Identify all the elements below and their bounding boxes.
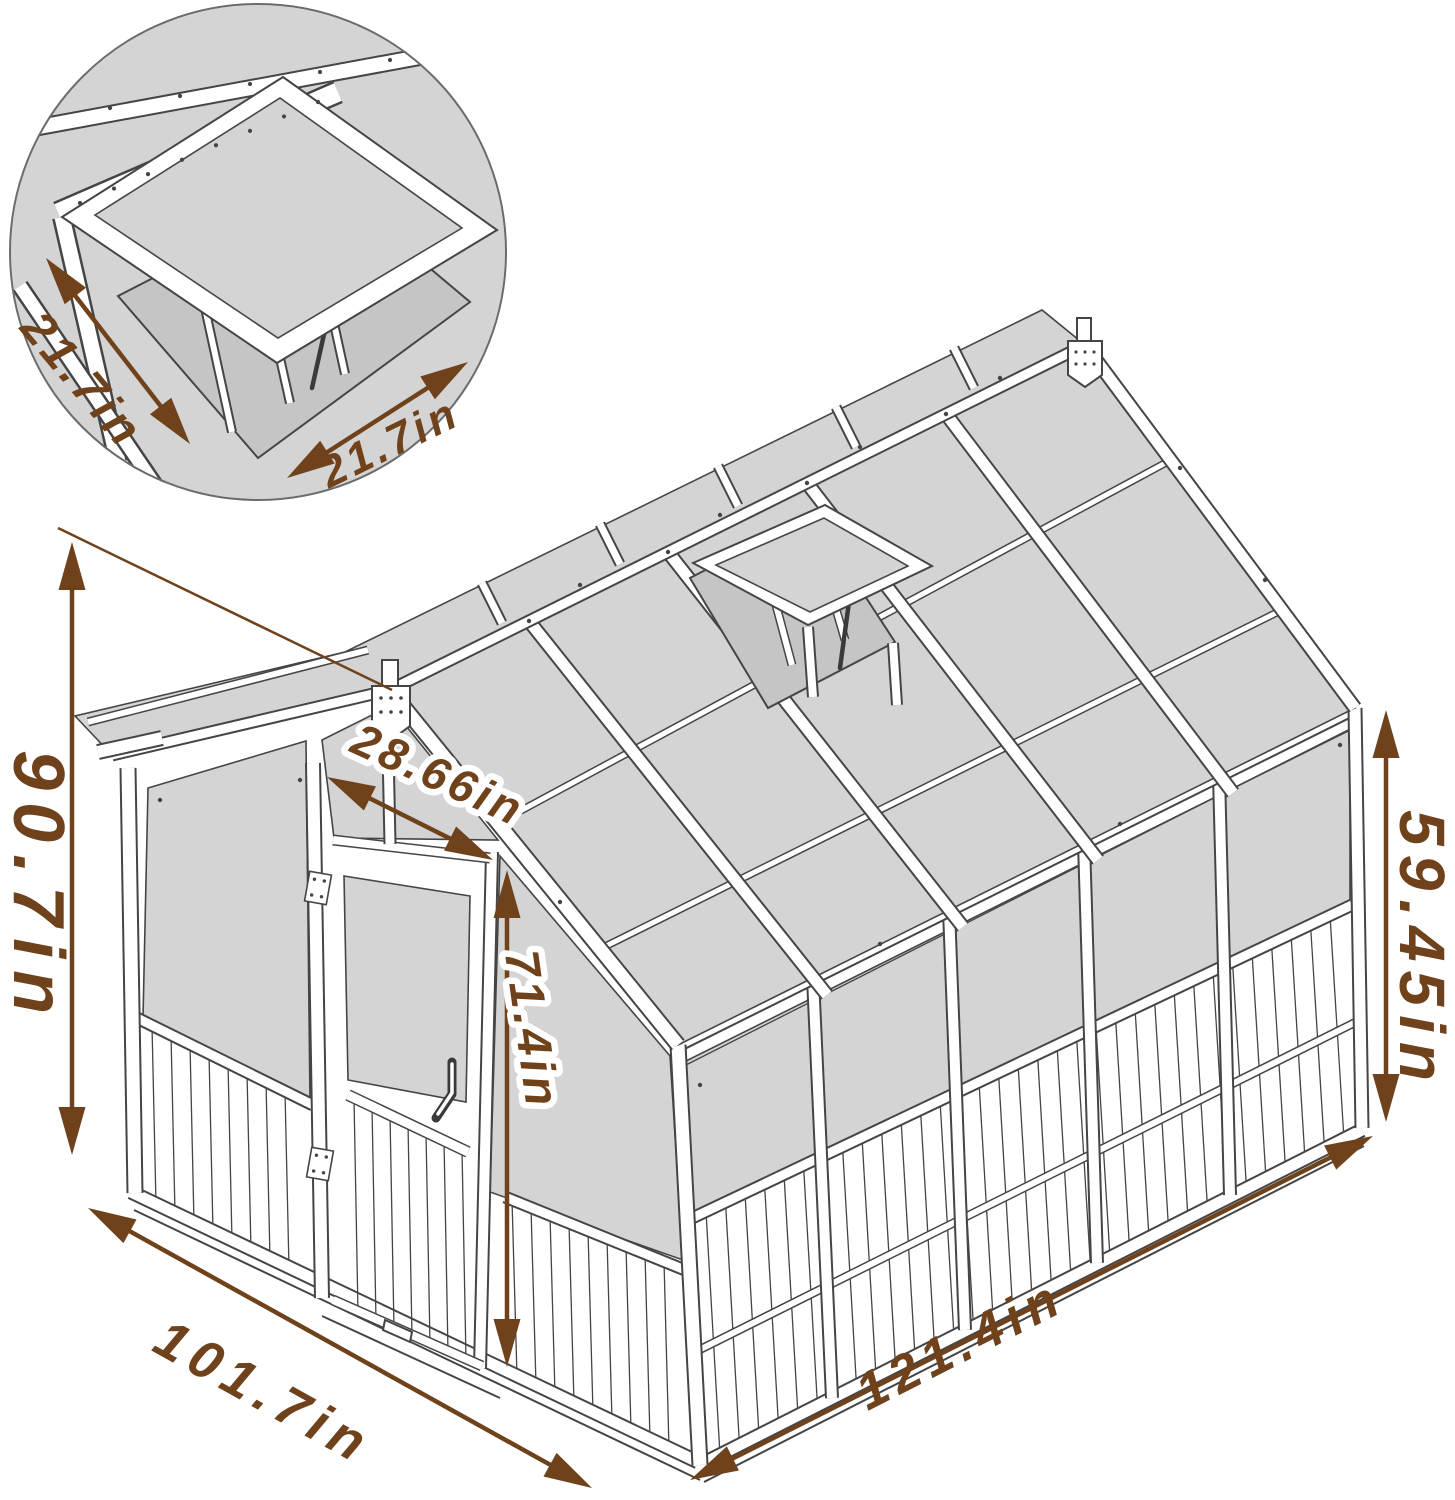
dimension-label-side-wall-height: 59.45in xyxy=(1386,810,1455,1090)
dimension-side-wall-height: 59.45in xyxy=(1373,710,1455,1122)
greenhouse-dimensions-figure: 21.7in21.7in90.7in28.66in28.66in71.4in71… xyxy=(0,0,1455,1500)
door-hinge-top xyxy=(305,871,332,904)
door-hinge-bottom xyxy=(307,1147,334,1180)
dimension-label-overall-height: 90.7in xyxy=(0,750,78,1026)
greenhouse-dimension-diagram: 21.7in21.7in90.7in28.66in28.66in71.4in71… xyxy=(0,0,1455,1500)
dimension-label-front-width: 101.7in xyxy=(145,1308,383,1476)
